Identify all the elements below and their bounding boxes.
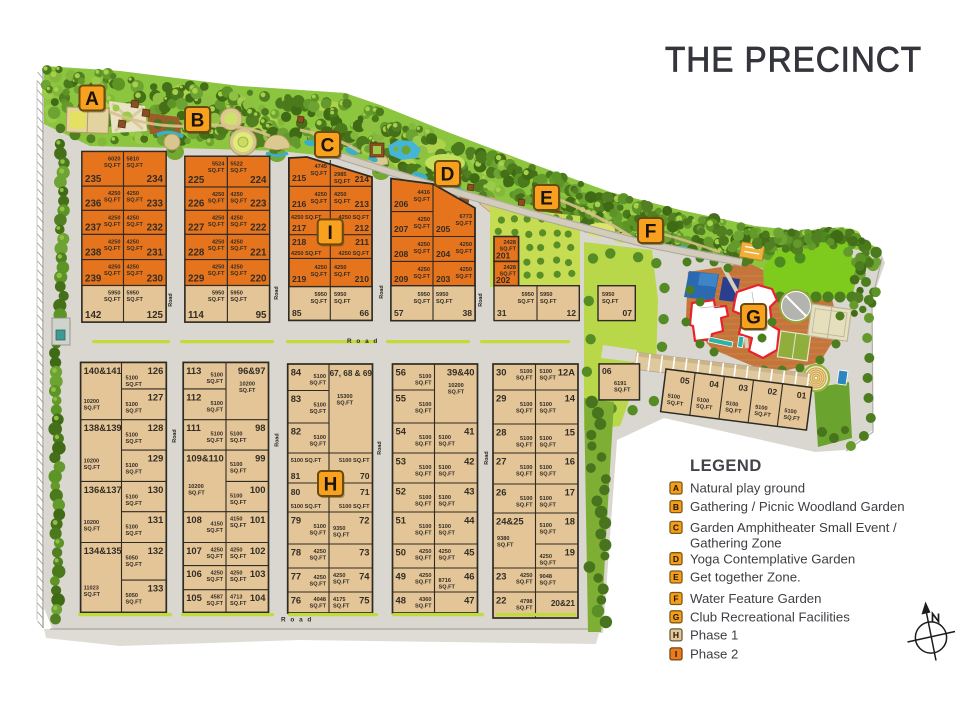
svg-text:SQ.FT: SQ.FT [414, 249, 431, 255]
svg-text:4360: 4360 [419, 597, 431, 603]
svg-text:Road: Road [274, 286, 280, 299]
svg-text:5100: 5100 [439, 495, 451, 501]
svg-text:236: 236 [85, 198, 102, 209]
svg-text:4250 SQ.FT: 4250 SQ.FT [291, 251, 322, 257]
svg-text:SQ.FT: SQ.FT [614, 388, 631, 394]
svg-text:5100: 5100 [439, 435, 451, 441]
svg-text:228: 228 [188, 248, 205, 259]
svg-text:I: I [675, 649, 677, 659]
svg-text:SQ.FT: SQ.FT [230, 577, 247, 583]
svg-text:4250: 4250 [230, 548, 242, 554]
svg-text:5100: 5100 [419, 465, 431, 471]
svg-text:131: 131 [148, 514, 164, 525]
svg-text:5950: 5950 [418, 292, 430, 298]
svg-text:100: 100 [250, 484, 266, 495]
svg-text:SQ.FT: SQ.FT [540, 530, 557, 536]
svg-text:2985: 2985 [334, 172, 346, 178]
svg-text:4250: 4250 [230, 265, 242, 271]
svg-text:G: G [673, 612, 680, 622]
svg-text:5100: 5100 [419, 495, 431, 501]
svg-text:4250: 4250 [460, 267, 472, 273]
svg-text:05: 05 [680, 375, 691, 386]
svg-text:4250: 4250 [439, 549, 451, 555]
svg-text:130: 130 [148, 484, 164, 495]
svg-text:230: 230 [147, 273, 164, 284]
svg-text:70: 70 [360, 471, 370, 481]
svg-text:SQ.FT: SQ.FT [415, 502, 432, 508]
svg-text:SQ.FT: SQ.FT [310, 409, 327, 415]
svg-text:140&141: 140&141 [84, 365, 122, 376]
svg-text:126: 126 [148, 365, 164, 376]
svg-text:20&21: 20&21 [551, 599, 576, 608]
svg-text:SQ.FT: SQ.FT [127, 163, 144, 169]
svg-text:233: 233 [147, 198, 164, 209]
svg-text:5100: 5100 [126, 525, 138, 531]
svg-text:54: 54 [396, 426, 407, 437]
svg-text:101: 101 [250, 514, 266, 525]
svg-text:49: 49 [396, 571, 406, 582]
svg-text:18: 18 [565, 516, 575, 527]
svg-text:SQ.FT: SQ.FT [540, 299, 557, 305]
svg-text:9350: 9350 [333, 526, 345, 532]
svg-text:95: 95 [256, 310, 267, 321]
svg-text:SQ.FT: SQ.FT [230, 523, 247, 529]
svg-text:4250: 4250 [211, 571, 223, 577]
svg-text:78: 78 [291, 547, 301, 558]
svg-text:5100: 5100 [230, 432, 242, 438]
svg-text:227: 227 [188, 222, 205, 233]
svg-text:SQ.FT: SQ.FT [516, 409, 533, 415]
svg-text:5100: 5100 [126, 463, 138, 469]
svg-text:77: 77 [291, 571, 301, 582]
svg-text:211: 211 [355, 237, 369, 247]
svg-text:44: 44 [464, 515, 475, 526]
svg-text:4250: 4250 [108, 191, 120, 197]
svg-text:213: 213 [355, 199, 370, 209]
svg-text:SQ.FT: SQ.FT [207, 407, 224, 413]
svg-text:SQ.FT: SQ.FT [127, 246, 144, 252]
svg-text:224: 224 [250, 175, 267, 186]
svg-text:39&40: 39&40 [447, 367, 475, 378]
svg-text:SQ.FT: SQ.FT [516, 606, 533, 612]
svg-text:E: E [540, 189, 553, 210]
svg-text:10200: 10200 [239, 381, 255, 387]
svg-text:SQ.FT: SQ.FT [414, 224, 431, 230]
svg-text:217: 217 [292, 223, 307, 233]
svg-text:SQ.FT: SQ.FT [104, 222, 121, 228]
svg-text:96&97: 96&97 [238, 365, 266, 376]
svg-text:207: 207 [394, 224, 409, 234]
svg-text:4798: 4798 [520, 599, 532, 605]
svg-text:214: 214 [355, 174, 370, 184]
svg-text:B: B [191, 111, 205, 132]
svg-text:43: 43 [464, 486, 474, 497]
svg-text:5100 SQ.FT: 5100 SQ.FT [291, 504, 322, 510]
svg-text:SQ.FT: SQ.FT [333, 533, 350, 539]
svg-text:Yoga Contemplative Garden: Yoga Contemplative Garden [690, 551, 855, 566]
svg-text:15300: 15300 [337, 394, 353, 400]
svg-text:80: 80 [291, 487, 301, 497]
svg-text:45: 45 [464, 547, 474, 558]
svg-text:5100: 5100 [314, 403, 326, 409]
svg-text:129: 129 [148, 453, 164, 464]
svg-text:203: 203 [436, 274, 451, 284]
svg-text:6773: 6773 [460, 214, 472, 220]
svg-text:4175: 4175 [333, 597, 345, 603]
svg-text:4713: 4713 [230, 595, 242, 601]
svg-text:SQ.FT: SQ.FT [516, 472, 533, 478]
svg-text:202: 202 [496, 275, 511, 285]
svg-text:4745: 4745 [315, 164, 327, 170]
svg-text:SQ.FT: SQ.FT [207, 577, 224, 583]
svg-text:57: 57 [394, 308, 404, 318]
svg-text:42: 42 [464, 456, 474, 467]
svg-text:4250: 4250 [419, 549, 431, 555]
svg-text:55: 55 [396, 393, 406, 404]
svg-text:16: 16 [565, 456, 575, 467]
svg-text:8716: 8716 [439, 578, 451, 584]
svg-text:C: C [321, 136, 335, 157]
svg-text:5100: 5100 [540, 523, 552, 529]
svg-text:12A: 12A [558, 367, 575, 378]
svg-text:220: 220 [250, 273, 267, 284]
svg-text:SQ.FT: SQ.FT [540, 376, 557, 382]
svg-text:5950: 5950 [127, 290, 139, 296]
svg-text:SQ.FT: SQ.FT [230, 469, 247, 475]
svg-text:4250: 4250 [230, 239, 242, 245]
svg-text:Road: Road [379, 285, 385, 298]
svg-text:SQ.FT: SQ.FT [439, 442, 456, 448]
svg-text:113: 113 [186, 365, 201, 376]
svg-text:108: 108 [186, 514, 202, 525]
svg-text:SQ.FT: SQ.FT [310, 604, 327, 610]
svg-text:26: 26 [496, 487, 506, 498]
svg-text:5950: 5950 [602, 292, 614, 298]
svg-text:I: I [328, 223, 333, 244]
svg-text:SQ.FT: SQ.FT [84, 592, 101, 598]
svg-text:SQ.FT: SQ.FT [333, 580, 350, 586]
svg-text:5100: 5100 [439, 524, 451, 530]
svg-text:5100: 5100 [314, 374, 326, 380]
svg-text:9048: 9048 [540, 574, 552, 580]
svg-text:SQ.FT: SQ.FT [126, 439, 143, 445]
svg-text:4250: 4250 [127, 215, 139, 221]
svg-text:Road: Road [478, 293, 484, 306]
svg-text:5522: 5522 [230, 161, 242, 167]
svg-text:SQ.FT: SQ.FT [207, 554, 224, 560]
svg-text:4250: 4250 [127, 239, 139, 245]
svg-text:SQ.FT: SQ.FT [540, 409, 557, 415]
svg-text:5050: 5050 [126, 556, 138, 562]
svg-text:235: 235 [85, 174, 102, 185]
svg-text:10200: 10200 [84, 399, 100, 405]
svg-text:5100: 5100 [126, 402, 138, 408]
svg-text:56: 56 [396, 367, 406, 378]
svg-text:27: 27 [496, 456, 506, 467]
svg-text:SQ.FT: SQ.FT [126, 562, 143, 568]
svg-text:215: 215 [292, 173, 307, 183]
svg-text:142: 142 [85, 310, 102, 321]
svg-text:THE PRECINCT: THE PRECINCT [665, 40, 922, 80]
svg-text:4416: 4416 [418, 190, 430, 196]
svg-text:B: B [673, 502, 679, 512]
svg-text:A: A [85, 89, 99, 110]
svg-text:5100: 5100 [419, 374, 431, 380]
svg-text:SQ.FT: SQ.FT [456, 221, 473, 227]
svg-text:Road: Road [172, 429, 178, 442]
svg-text:12: 12 [566, 308, 576, 318]
svg-text:111: 111 [186, 422, 201, 433]
svg-text:SQ.FT: SQ.FT [333, 604, 350, 610]
svg-text:99: 99 [255, 453, 265, 464]
svg-text:5950: 5950 [315, 292, 327, 298]
svg-text:212: 212 [355, 223, 370, 233]
svg-text:4250: 4250 [230, 571, 242, 577]
svg-text:C: C [673, 523, 679, 533]
svg-text:104: 104 [250, 592, 266, 603]
svg-text:14: 14 [565, 393, 576, 404]
svg-text:SQ.FT: SQ.FT [230, 271, 247, 277]
svg-text:SQ.FT: SQ.FT [126, 408, 143, 414]
svg-text:SQ.FT: SQ.FT [230, 246, 247, 252]
svg-text:72: 72 [359, 515, 369, 526]
svg-text:10200: 10200 [84, 459, 100, 465]
svg-text:Road: Road [377, 441, 383, 454]
svg-text:4150: 4150 [230, 517, 242, 523]
svg-text:Get together Zone.: Get together Zone. [690, 570, 801, 585]
svg-text:41: 41 [464, 426, 474, 437]
svg-text:SQ.FT: SQ.FT [208, 246, 225, 252]
svg-text:E: E [673, 572, 679, 582]
svg-text:4250: 4250 [314, 575, 326, 581]
svg-text:SQ.FT: SQ.FT [84, 406, 101, 412]
svg-text:5524: 5524 [212, 161, 225, 167]
svg-text:82: 82 [291, 426, 301, 437]
svg-text:219: 219 [292, 274, 307, 284]
svg-text:204: 204 [436, 249, 451, 259]
svg-text:4587: 4587 [211, 595, 223, 601]
svg-text:SQ.FT: SQ.FT [516, 376, 533, 382]
svg-text:24&25: 24&25 [496, 516, 524, 527]
svg-text:SQ.FT: SQ.FT [334, 179, 351, 185]
svg-text:30: 30 [496, 367, 506, 378]
svg-text:109&110: 109&110 [186, 453, 224, 464]
svg-text:17: 17 [565, 487, 575, 498]
svg-text:4250: 4250 [315, 192, 327, 198]
svg-text:4150: 4150 [211, 522, 223, 528]
svg-text:234: 234 [147, 174, 164, 185]
svg-text:4250: 4250 [419, 573, 431, 579]
svg-text:138&139: 138&139 [84, 422, 122, 433]
svg-text:5100: 5100 [439, 465, 451, 471]
svg-text:SQ.FT: SQ.FT [104, 198, 121, 204]
svg-text:SQ.FT: SQ.FT [334, 199, 351, 205]
svg-text:98: 98 [255, 422, 265, 433]
svg-text:4250: 4250 [108, 215, 120, 221]
svg-text:128: 128 [148, 422, 164, 433]
svg-text:5950: 5950 [522, 292, 534, 298]
svg-text:5100: 5100 [211, 401, 223, 407]
svg-text:SQ.FT: SQ.FT [104, 246, 121, 252]
svg-text:5100: 5100 [520, 369, 532, 375]
svg-text:5100: 5100 [211, 372, 223, 378]
svg-text:4250 SQ.FT: 4250 SQ.FT [339, 215, 370, 221]
svg-text:SQ.FT: SQ.FT [310, 381, 327, 387]
svg-text:74: 74 [359, 571, 370, 582]
svg-text:SQ.FT: SQ.FT [439, 502, 456, 508]
svg-text:SQ.FT: SQ.FT [448, 390, 465, 396]
svg-text:SQ.FT: SQ.FT [414, 197, 431, 203]
svg-text:4250: 4250 [314, 549, 326, 555]
svg-text:SQ.FT: SQ.FT [230, 222, 247, 228]
svg-text:SQ.FT: SQ.FT [188, 491, 205, 497]
svg-text:F: F [673, 594, 678, 604]
svg-text:SQ.FT: SQ.FT [127, 222, 144, 228]
svg-text:66: 66 [359, 308, 369, 318]
svg-text:SQ.FT: SQ.FT [230, 438, 247, 444]
svg-text:SQ.FT: SQ.FT [207, 601, 224, 607]
svg-text:5100: 5100 [211, 432, 223, 438]
svg-text:48: 48 [396, 595, 406, 606]
svg-text:Phase 1: Phase 1 [690, 628, 738, 643]
svg-text:2428: 2428 [504, 240, 516, 246]
svg-text:SQ.FT: SQ.FT [415, 409, 432, 415]
svg-text:4250: 4250 [211, 548, 223, 554]
svg-text:71: 71 [360, 487, 370, 497]
svg-text:SQ.FT: SQ.FT [126, 600, 143, 606]
svg-text:4250: 4250 [334, 265, 346, 271]
svg-text:SQ.FT: SQ.FT [127, 198, 144, 204]
svg-text:53: 53 [396, 456, 406, 467]
svg-text:2428: 2428 [504, 265, 516, 271]
svg-text:G: G [746, 308, 761, 329]
svg-text:Road: Road [168, 293, 174, 306]
svg-text:SQ.FT: SQ.FT [310, 556, 327, 562]
svg-text:4250 SQ.FT: 4250 SQ.FT [339, 251, 370, 257]
svg-text:15: 15 [565, 427, 575, 438]
svg-text:SQ.FT: SQ.FT [207, 438, 224, 444]
svg-text:102: 102 [250, 545, 266, 556]
svg-text:SQ.FT: SQ.FT [207, 528, 224, 534]
svg-text:A: A [673, 483, 679, 493]
svg-text:F: F [645, 222, 657, 243]
svg-text:5950: 5950 [230, 290, 242, 296]
svg-text:03: 03 [738, 382, 749, 393]
svg-text:5100: 5100 [540, 369, 552, 375]
svg-text:10200: 10200 [448, 383, 464, 389]
svg-text:D: D [441, 165, 455, 186]
svg-text:SQ.FT: SQ.FT [126, 531, 143, 537]
svg-text:5100: 5100 [419, 435, 431, 441]
svg-text:SQ.FT: SQ.FT [540, 443, 557, 449]
svg-text:4250: 4250 [540, 554, 552, 560]
svg-text:SQ.FT: SQ.FT [208, 271, 225, 277]
svg-text:5950: 5950 [212, 290, 224, 296]
svg-text:SQ.FT: SQ.FT [104, 163, 121, 169]
svg-text:238: 238 [85, 248, 102, 259]
svg-text:5100: 5100 [520, 465, 532, 471]
svg-text:SQ.FT: SQ.FT [415, 381, 432, 387]
svg-text:38: 38 [462, 308, 472, 318]
svg-text:SQ.FT: SQ.FT [230, 601, 247, 607]
svg-text:134&135: 134&135 [84, 545, 122, 556]
svg-text:73: 73 [359, 547, 369, 558]
svg-text:9380: 9380 [497, 536, 509, 542]
svg-text:210: 210 [355, 274, 370, 284]
svg-text:5100: 5100 [314, 435, 326, 441]
svg-text:SQ.FT: SQ.FT [415, 556, 432, 562]
svg-text:29: 29 [496, 393, 506, 404]
svg-text:04: 04 [709, 379, 720, 390]
svg-text:SQ.FT: SQ.FT [414, 274, 431, 280]
svg-text:221: 221 [250, 248, 267, 259]
svg-text:Water Feature Garden: Water Feature Garden [690, 591, 821, 606]
svg-text:SQ.FT: SQ.FT [230, 168, 247, 174]
svg-text:46: 46 [464, 571, 474, 582]
svg-text:22: 22 [496, 595, 506, 606]
svg-text:4250: 4250 [334, 192, 346, 198]
svg-text:133: 133 [148, 583, 164, 594]
svg-text:106: 106 [186, 568, 202, 579]
svg-text:5100: 5100 [419, 524, 431, 530]
svg-text:4250: 4250 [460, 242, 472, 248]
svg-text:5100: 5100 [126, 433, 138, 439]
svg-text:SQ.FT: SQ.FT [516, 503, 533, 509]
svg-text:6020: 6020 [108, 157, 120, 163]
svg-text:4250: 4250 [520, 573, 532, 579]
svg-text:Club Recreational Facilities: Club Recreational Facilities [690, 609, 850, 624]
svg-text:103: 103 [250, 568, 266, 579]
svg-text:5100 SQ.FT: 5100 SQ.FT [291, 458, 322, 464]
svg-text:28: 28 [496, 427, 506, 438]
svg-text:4250: 4250 [230, 192, 242, 198]
svg-text:Gathering Zone: Gathering Zone [690, 535, 782, 550]
svg-text:SQ.FT: SQ.FT [540, 472, 557, 478]
svg-text:5100: 5100 [540, 465, 552, 471]
svg-text:01: 01 [796, 390, 807, 401]
svg-text:6191: 6191 [614, 381, 626, 387]
svg-text:5100 SQ.FT: 5100 SQ.FT [339, 458, 370, 464]
svg-text:225: 225 [188, 175, 205, 186]
svg-text:232: 232 [147, 222, 164, 233]
svg-text:5100: 5100 [520, 436, 532, 442]
svg-text:4250: 4250 [418, 242, 430, 248]
svg-text:76: 76 [291, 595, 301, 606]
svg-text:125: 125 [147, 310, 164, 321]
svg-text:H: H [673, 630, 679, 640]
svg-text:SQ.FT: SQ.FT [540, 561, 557, 567]
svg-text:4250: 4250 [108, 239, 120, 245]
svg-text:226: 226 [188, 198, 205, 209]
svg-text:107: 107 [186, 545, 202, 556]
svg-text:4048: 4048 [314, 597, 326, 603]
svg-text:R o a d: R o a d [347, 338, 379, 345]
svg-text:SQ.FT: SQ.FT [310, 442, 327, 448]
svg-text:208: 208 [394, 249, 409, 259]
svg-text:SQ.FT: SQ.FT [337, 401, 354, 407]
svg-text:5810: 5810 [127, 157, 139, 163]
svg-text:SQ.FT: SQ.FT [230, 500, 247, 506]
svg-text:SQ.FT: SQ.FT [439, 472, 456, 478]
svg-text:SQ.FT: SQ.FT [310, 582, 327, 588]
svg-text:237: 237 [85, 222, 102, 233]
svg-text:4250: 4250 [230, 215, 242, 221]
svg-text:5100: 5100 [419, 402, 431, 408]
svg-text:4250: 4250 [212, 265, 224, 271]
svg-text:132: 132 [148, 545, 164, 556]
svg-text:4250: 4250 [212, 215, 224, 221]
svg-text:31: 31 [497, 308, 507, 318]
